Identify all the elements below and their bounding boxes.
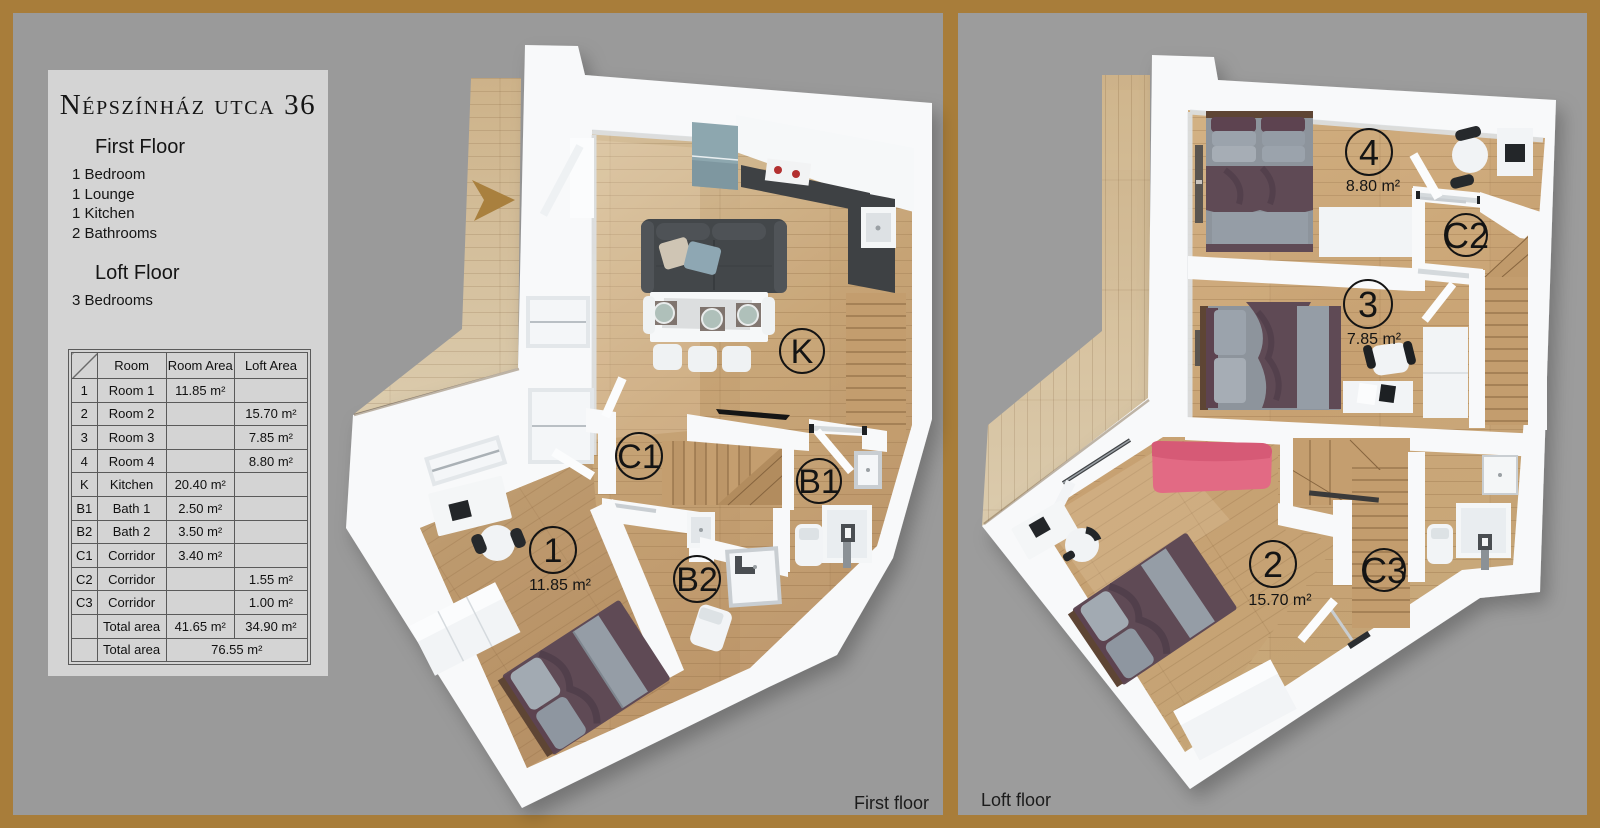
svg-text:3: 3 [1358,284,1378,325]
svg-text:4: 4 [1359,132,1379,173]
svg-text:First floor: First floor [854,793,929,813]
svg-text:8.80 m²: 8.80 m² [1346,178,1401,195]
svg-text:11.85 m²: 11.85 m² [529,577,592,594]
svg-text:C3: C3 [1361,550,1407,591]
svg-text:1: 1 [544,532,563,570]
svg-text:C2: C2 [1443,215,1489,256]
svg-text:B1: B1 [798,463,840,501]
svg-text:Loft floor: Loft floor [981,790,1051,810]
svg-text:2: 2 [1263,544,1283,585]
svg-text:K: K [791,333,814,371]
svg-text:B2: B2 [676,561,718,599]
svg-text:7.85 m²: 7.85 m² [1347,331,1402,348]
svg-text:15.70 m²: 15.70 m² [1248,592,1312,609]
svg-text:C1: C1 [617,438,660,476]
